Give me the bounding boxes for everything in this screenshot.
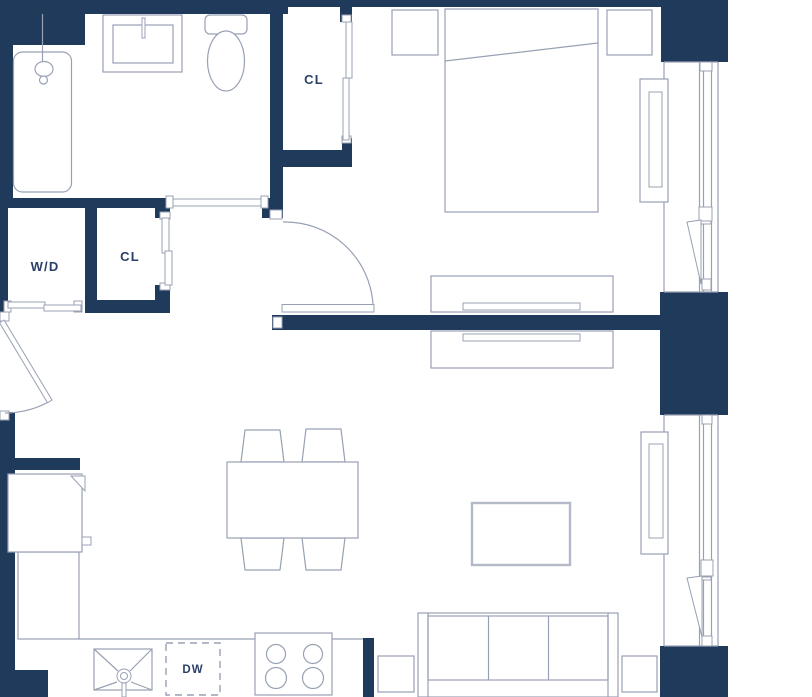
entry-door-jamb-bottom	[0, 411, 9, 420]
column-right-top	[661, 0, 728, 62]
washer-dryer-label: W/D	[31, 259, 60, 274]
living-console-handle	[463, 334, 580, 341]
wd-door-panel-a	[8, 302, 45, 308]
refrigerator-handle	[82, 537, 91, 545]
dining-area	[227, 429, 358, 570]
dining-chair-top-left	[241, 430, 284, 462]
living-operable-window-icon	[687, 576, 702, 637]
walls	[0, 0, 728, 697]
bedroom-window-latch	[701, 221, 711, 224]
dining-table	[227, 462, 358, 538]
bedroom	[392, 9, 668, 312]
column-right-bottom	[660, 646, 728, 697]
sofa	[418, 613, 618, 697]
dining-chair-top-right	[302, 429, 345, 462]
living-window-frame-top	[702, 415, 712, 424]
bed	[445, 9, 598, 212]
living-window-frame-bottom	[702, 636, 712, 646]
wall-bath-bottom	[0, 198, 170, 208]
nightstand-right	[607, 10, 652, 55]
vanity-faucet-icon	[142, 18, 145, 38]
column-right-middle	[660, 292, 728, 415]
kitchen-faucet	[121, 673, 128, 680]
floor-plan-drawing: CL W/D CL DW	[0, 0, 812, 697]
bedroom-operable-window-icon	[687, 220, 701, 284]
wd-door-panel-b	[44, 305, 81, 311]
bedroom-dresser-handle	[463, 303, 580, 310]
living-ptac-vent	[649, 444, 663, 538]
bedroom-window-frame-bottom	[702, 279, 711, 290]
wall-closet-top-bottom	[283, 150, 352, 167]
side-table-left	[378, 656, 414, 692]
toilet-bowl	[208, 31, 245, 91]
closet-hall-door-panel-a	[162, 218, 169, 253]
bedroom-window-handle	[699, 207, 712, 221]
bathroom-door-jamb-left	[166, 196, 173, 208]
wall-kitchen-entry-stub	[0, 458, 80, 470]
dishwasher-label: DW	[182, 664, 203, 676]
entry-door-leaf	[0, 320, 52, 403]
floor-plan: CL W/D CL DW	[0, 0, 812, 697]
wall-bath-closet-divider	[270, 0, 283, 218]
nightstand-left	[392, 10, 438, 55]
closet-top-door-panel-b	[343, 78, 349, 140]
closet-hall-label: CL	[120, 249, 140, 264]
wall-bedroom-living-divider	[272, 315, 661, 330]
entry-door-swing-arc	[5, 400, 52, 413]
bed-sheet-fold-line	[445, 43, 598, 61]
closet-top-door-panel-a	[346, 22, 352, 78]
sofa-cushions	[428, 616, 608, 680]
side-table-right	[622, 656, 657, 692]
wall-wd-cl-divider	[85, 208, 97, 313]
bedroom-ptac-vent	[649, 92, 662, 187]
coffee-table	[472, 503, 570, 565]
kitchen-counter-left	[18, 552, 79, 639]
living-room	[378, 331, 668, 697]
living-window-handle	[701, 560, 713, 576]
shower-knob-icon	[40, 76, 48, 84]
shower-head-icon	[35, 62, 53, 77]
sofa-armrests	[428, 613, 608, 697]
bedroom-window-frame-top	[700, 62, 712, 71]
dining-chair-bottom-left	[241, 538, 284, 570]
wall-left-bottom-step	[0, 670, 48, 697]
sofa-cushion-dividers	[489, 616, 549, 680]
closet-top-door-jamb-a	[342, 15, 351, 22]
bathroom-door-jamb-right	[261, 196, 268, 208]
bathroom-pocket-door	[172, 199, 262, 206]
bedroom-door-jamb-top	[270, 210, 282, 219]
divider-wall-end-jamb	[273, 317, 282, 328]
bedroom-door-leaf	[282, 305, 374, 313]
wall-kitchen-counter-stub	[363, 638, 374, 697]
bedroom-window-glazing	[700, 62, 719, 292]
wall-left-upper	[0, 0, 13, 208]
bedroom-door-swing-arc	[283, 222, 373, 304]
dining-chair-bottom-right	[302, 538, 345, 570]
closet-top-label: CL	[304, 72, 324, 87]
refrigerator	[8, 474, 82, 552]
entry-door-jamb-top	[0, 312, 9, 321]
closet-hall-door-panel-b	[165, 251, 172, 285]
kitchen-faucet-stem	[122, 683, 126, 697]
